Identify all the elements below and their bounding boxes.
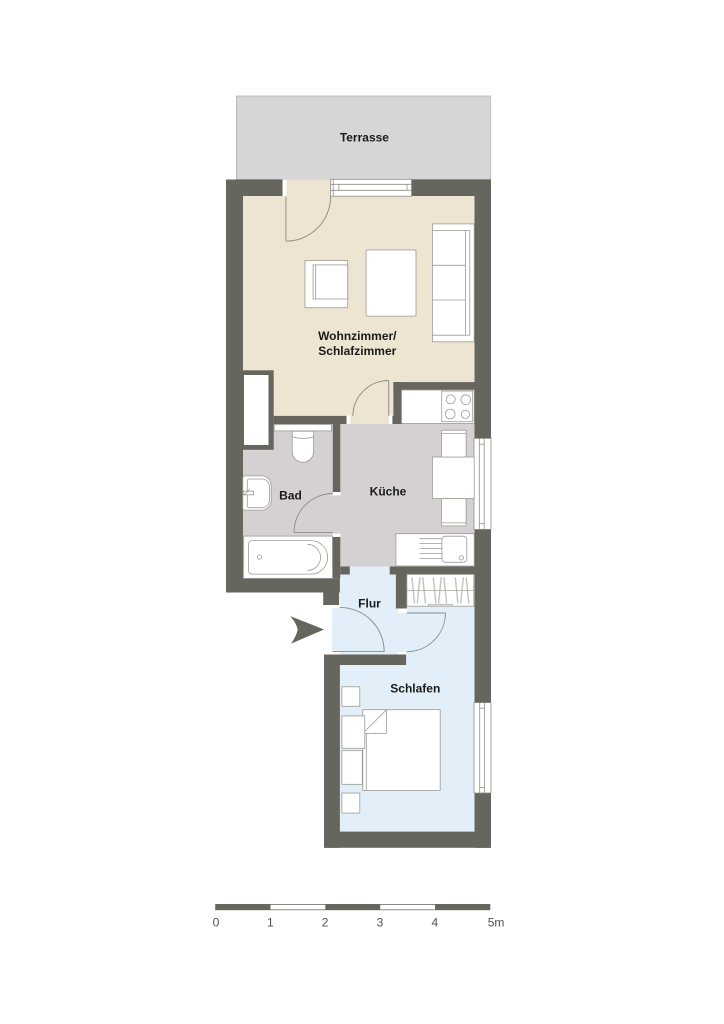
svg-text:Schlafzimmer: Schlafzimmer — [318, 344, 396, 358]
svg-text:0: 0 — [213, 916, 220, 930]
svg-text:Bad: Bad — [279, 488, 302, 502]
svg-text:Schlafen: Schlafen — [390, 681, 440, 695]
svg-text:Küche: Küche — [370, 485, 407, 499]
svg-text:2: 2 — [322, 916, 329, 930]
svg-text:Wohnzimmer/: Wohnzimmer/ — [318, 329, 397, 343]
svg-text:4: 4 — [432, 916, 439, 930]
svg-text:1: 1 — [267, 916, 274, 930]
svg-text:3: 3 — [377, 916, 384, 930]
svg-text:5m: 5m — [488, 916, 505, 930]
svg-text:Terrasse: Terrasse — [340, 130, 389, 144]
svg-text:Flur: Flur — [358, 597, 381, 611]
